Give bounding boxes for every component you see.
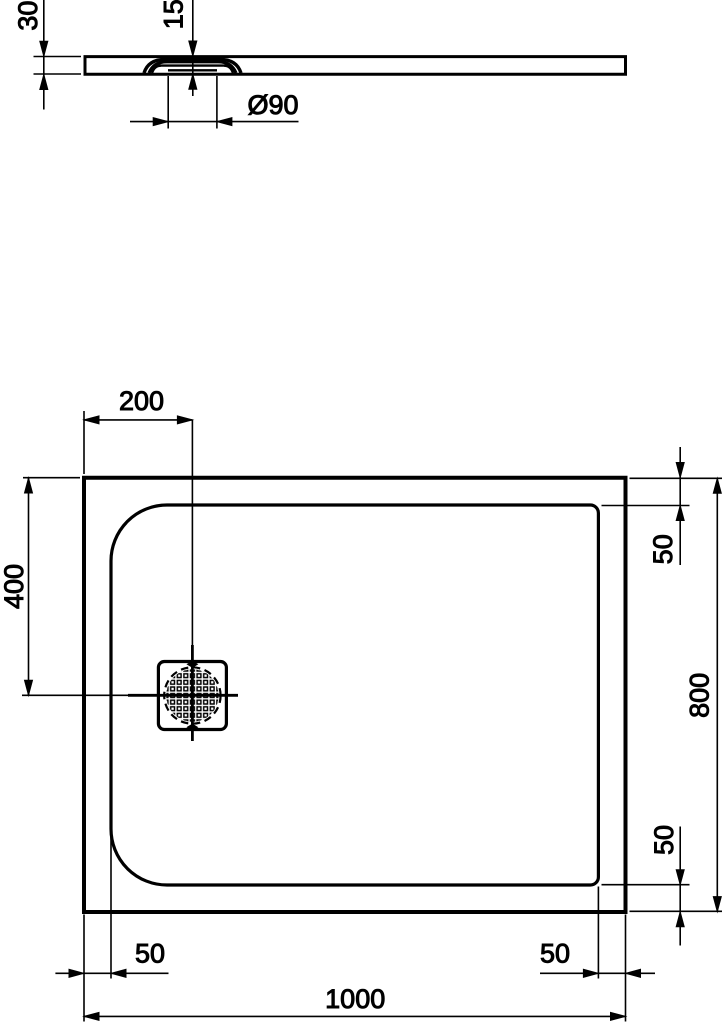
svg-text:50: 50 <box>135 938 165 968</box>
svg-text:400: 400 <box>0 564 29 609</box>
svg-text:800: 800 <box>685 673 715 718</box>
svg-text:200: 200 <box>119 386 164 416</box>
svg-text:1000: 1000 <box>325 984 385 1014</box>
svg-text:30: 30 <box>13 1 43 31</box>
svg-text:50: 50 <box>648 534 678 564</box>
svg-text:50: 50 <box>649 825 679 855</box>
svg-text:15: 15 <box>158 0 188 29</box>
svg-text:50: 50 <box>540 938 570 968</box>
svg-text:Ø90: Ø90 <box>247 90 298 120</box>
